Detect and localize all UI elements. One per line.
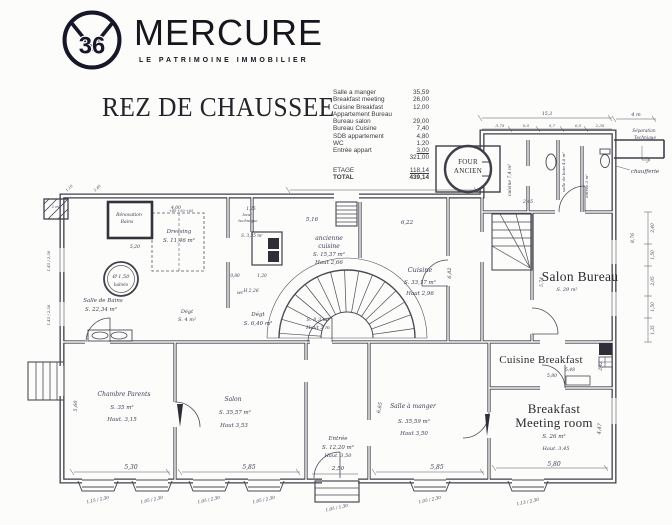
plan-label: 1,05 / 2,30 bbox=[418, 495, 442, 505]
plan-label: S. 8,3 m² bbox=[307, 317, 330, 323]
stair-tread bbox=[362, 282, 386, 317]
stair-tread bbox=[352, 271, 359, 312]
plan-label: S. 12,20 m² bbox=[322, 444, 354, 451]
plan-label: H 2,26 bbox=[242, 288, 259, 294]
plan-label: 3,75 bbox=[496, 123, 505, 128]
plan-label: 5,20 bbox=[130, 244, 140, 250]
plan-label: S. 11,46 m² bbox=[163, 237, 195, 244]
stair-tread bbox=[345, 270, 347, 312]
plan-label: 5,85 bbox=[430, 464, 444, 471]
plan-label: 1,45 / 2,50 bbox=[46, 304, 51, 325]
plan-label: Haut. 3,45 bbox=[542, 446, 570, 452]
plan-label: Salon bbox=[224, 396, 241, 403]
plan-label: balnéo bbox=[114, 282, 129, 287]
plan-label: 1,05 / 2,30 bbox=[140, 495, 164, 505]
plan-label: 2,40 bbox=[92, 184, 102, 193]
plan-label: local bbox=[242, 212, 252, 217]
plan-label: 1,25 bbox=[246, 206, 256, 211]
plan-label: Rénovation bbox=[115, 211, 142, 218]
plan-label: S. 6,40 m² bbox=[244, 320, 272, 327]
plan-label: 0,5 bbox=[575, 123, 582, 128]
plan-label: Dégt bbox=[180, 308, 194, 315]
plan-label: S. 35,57 m² bbox=[219, 409, 251, 416]
plan-label: 2,42 bbox=[598, 361, 603, 372]
plan-label: 5,60 bbox=[73, 400, 79, 412]
plan-label: Salle de Bains bbox=[83, 298, 123, 304]
straight-stair bbox=[336, 202, 357, 226]
plan-label: Séparation bbox=[632, 128, 656, 133]
floor-plan-document: 36 MERCURE LE PATRIMOINE IMMOBILIER REZ … bbox=[0, 0, 672, 525]
entrance-porch bbox=[315, 477, 359, 502]
plan-label: chaufferie bbox=[631, 169, 660, 175]
plan-label: Meeting room bbox=[515, 415, 593, 430]
window-gap bbox=[82, 477, 114, 485]
plan-label: ANCIEN bbox=[454, 167, 482, 175]
plan-label: cuisine 7,4 m² bbox=[507, 164, 513, 196]
plan-label: ancienne bbox=[315, 235, 343, 242]
plan-label: 6,22 bbox=[401, 220, 414, 226]
wing-sanitary bbox=[546, 149, 610, 170]
plan-label: Cuisine bbox=[408, 266, 433, 274]
plan-label: Dégt bbox=[250, 311, 265, 318]
plan-label: 1,50 bbox=[650, 250, 655, 260]
window-gap bbox=[193, 477, 225, 485]
plan-label: 8,76 bbox=[630, 233, 636, 243]
plan-label: 5,74 bbox=[539, 277, 545, 287]
plan-label: 2,35 bbox=[595, 123, 605, 128]
plan-label: salle de bain 4,8 m² bbox=[561, 152, 566, 192]
stair-tread bbox=[357, 275, 373, 314]
plan-label: S. 29 m² bbox=[556, 287, 577, 293]
plan-label: Haut 3,50 bbox=[399, 431, 428, 437]
window-gap bbox=[512, 477, 544, 485]
window-gap bbox=[414, 477, 446, 485]
plan-label: 5,85 bbox=[242, 464, 256, 471]
plan-label: 1,35 bbox=[650, 325, 655, 335]
plan-label: 1,10 bbox=[65, 184, 74, 193]
plan-label: Bains bbox=[120, 219, 134, 225]
plan-label: cuisine bbox=[318, 243, 340, 250]
plan-label: S. 35,59 m² bbox=[398, 418, 430, 425]
plan-label: 1,05 / 2,30 bbox=[197, 495, 221, 505]
plan-label: 5,80 bbox=[547, 461, 561, 468]
plan-label: Chambre Parents bbox=[97, 391, 150, 398]
plan-label: 2,50 bbox=[331, 466, 345, 472]
stair-tread bbox=[369, 302, 405, 324]
plan-label: 5,30 bbox=[124, 464, 138, 471]
plan-label: 1,20 bbox=[257, 273, 267, 278]
stair-tread bbox=[305, 284, 331, 317]
winder-stair bbox=[492, 214, 532, 270]
plan-label: 2,40 bbox=[650, 223, 655, 234]
plan-label: S. 33,17 m² bbox=[404, 279, 436, 286]
plan-label: Haut 2 m bbox=[305, 325, 330, 331]
plan-label: Haut. 3,50 bbox=[324, 453, 353, 459]
plan-label: 2 m² bbox=[51, 204, 61, 209]
plan-label: S. 26 m² bbox=[542, 433, 565, 440]
plan-label: Entrée bbox=[328, 435, 349, 442]
plan-label: S. 22,34 m² bbox=[85, 306, 117, 313]
plan-label: S. 4 m² bbox=[178, 317, 196, 323]
plan-label: Haut 3,53 bbox=[219, 423, 248, 429]
plan-label: Cuisine Breakfast bbox=[499, 354, 583, 366]
plan-label: FOUR bbox=[458, 158, 478, 166]
fan-staircase bbox=[267, 258, 427, 338]
plan-label: 0,5 bbox=[523, 123, 530, 128]
plan-label: Haut 2,66 bbox=[314, 260, 343, 266]
plan-label: Technique bbox=[634, 135, 656, 140]
plan-label: 1,45 / 2,50 bbox=[46, 250, 51, 271]
plan-label: 4,00 bbox=[170, 205, 181, 211]
plan-label: Salle à manger bbox=[390, 403, 437, 410]
fixtures bbox=[44, 149, 612, 385]
plan-label: Salon Bureau bbox=[542, 269, 619, 284]
plan-label: 5,16 bbox=[306, 217, 319, 223]
plan-label: Dressing bbox=[166, 229, 192, 235]
stair-tread bbox=[371, 315, 411, 329]
stair-tread bbox=[366, 291, 396, 320]
plan-label: Breakfast bbox=[528, 401, 581, 416]
plan-label: Haut 2,96 bbox=[405, 291, 434, 297]
plan-label: 5,7 bbox=[549, 123, 556, 128]
window-gap bbox=[136, 477, 168, 485]
plan-label: technique bbox=[238, 218, 258, 223]
plan-label: entrée 3 m² bbox=[584, 174, 589, 198]
plan-label: 1,15 / 2,30 bbox=[86, 495, 110, 505]
plan-label: Haut. 3,15 bbox=[106, 417, 137, 423]
plan-label: 5,48 bbox=[565, 367, 575, 373]
plan-label: 6,65 bbox=[376, 402, 384, 414]
stair-tread bbox=[279, 333, 321, 336]
plan-label: 5,80 bbox=[547, 373, 557, 379]
plan-label: 2,45 bbox=[522, 199, 533, 205]
exterior-stair bbox=[28, 362, 64, 400]
plan-label: S. 15,37 m² bbox=[313, 251, 345, 258]
plan-label: S. 35 m² bbox=[110, 404, 133, 411]
plan-label: 1,05 / 1,30 bbox=[325, 503, 349, 513]
plan-label: 6,82 bbox=[447, 267, 453, 278]
plan-label: wc bbox=[237, 291, 244, 296]
plan-label: 2,05 bbox=[650, 276, 655, 287]
plan-label: 4,47 bbox=[596, 422, 603, 435]
plan-label: 1,50 bbox=[650, 302, 655, 312]
plan-label: 15,3 bbox=[542, 111, 552, 117]
plan-label: S. 3,35 m² bbox=[241, 233, 263, 238]
window-gap bbox=[248, 477, 280, 485]
stair-tread bbox=[373, 329, 415, 335]
plan-label: 4 m bbox=[630, 112, 641, 118]
plan-label: Ø 1,50 bbox=[112, 273, 131, 280]
plan-label: 1,05 / 2,30 bbox=[252, 495, 276, 505]
plan-labels: Salon BureauCuisine BreakfastBreakfastMe… bbox=[46, 111, 660, 512]
plan-label: 1,13 / 2,30 bbox=[516, 497, 540, 507]
floor-plan-svg: Salon BureauCuisine BreakfastBreakfastMe… bbox=[0, 0, 672, 525]
plan-label: 0,80 bbox=[230, 273, 240, 278]
